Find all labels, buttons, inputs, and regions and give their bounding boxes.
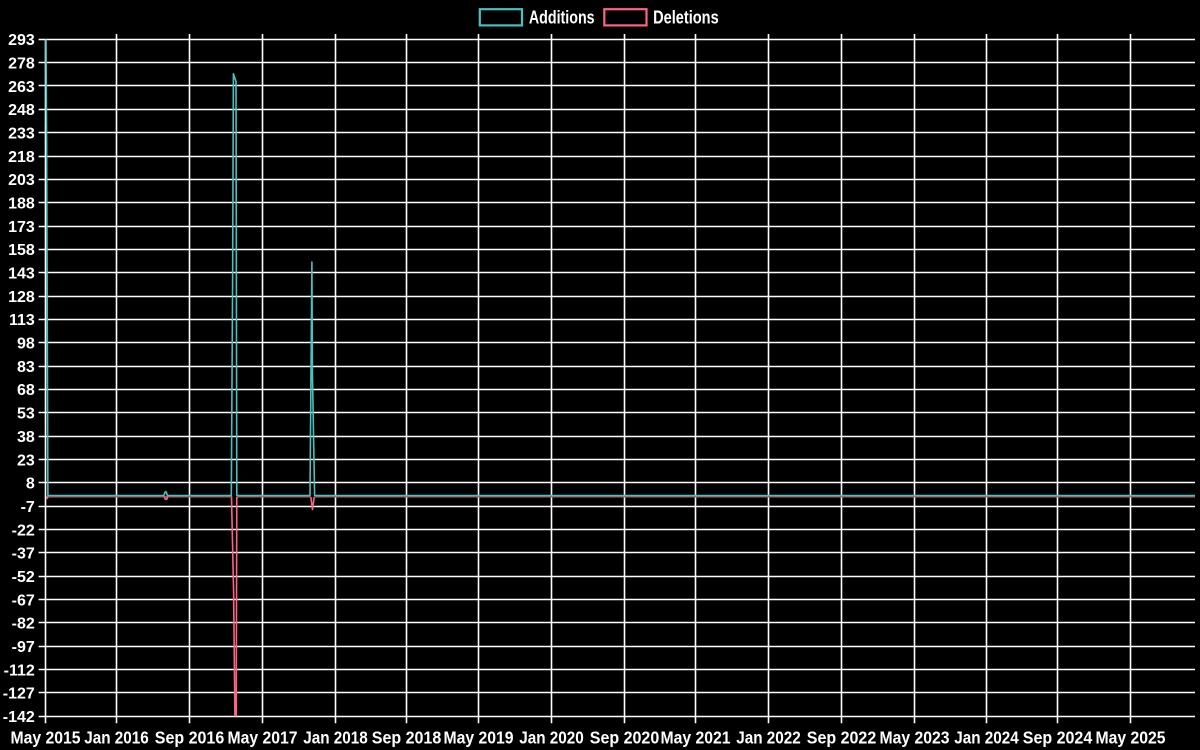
svg-text:Sep 2020: Sep 2020 — [590, 728, 660, 748]
svg-text:-142: -142 — [3, 709, 35, 726]
svg-text:Additions: Additions — [529, 7, 595, 28]
svg-text:-22: -22 — [12, 522, 35, 539]
svg-text:263: 263 — [8, 79, 35, 96]
svg-text:188: 188 — [8, 195, 35, 212]
svg-text:-82: -82 — [12, 616, 35, 633]
svg-text:-52: -52 — [12, 569, 35, 586]
svg-text:68: 68 — [17, 382, 35, 399]
svg-text:May 2025: May 2025 — [1096, 728, 1166, 748]
svg-text:173: 173 — [8, 219, 35, 236]
svg-text:218: 218 — [8, 149, 35, 166]
svg-text:278: 278 — [8, 55, 35, 72]
svg-text:Deletions: Deletions — [653, 7, 719, 28]
svg-text:53: 53 — [17, 406, 35, 423]
svg-text:-97: -97 — [12, 639, 35, 656]
svg-text:-112: -112 — [4, 662, 35, 679]
svg-text:143: 143 — [8, 266, 35, 283]
svg-text:113: 113 — [9, 312, 35, 329]
svg-text:Sep 2024: Sep 2024 — [1023, 728, 1093, 748]
svg-text:98: 98 — [17, 336, 35, 353]
svg-text:38: 38 — [17, 429, 35, 446]
svg-text:8: 8 — [26, 476, 35, 493]
svg-text:May 2017: May 2017 — [228, 728, 298, 748]
svg-text:May 2015: May 2015 — [11, 728, 81, 748]
svg-text:83: 83 — [17, 359, 35, 376]
svg-text:248: 248 — [8, 102, 35, 119]
svg-text:-67: -67 — [12, 592, 35, 609]
svg-text:203: 203 — [8, 172, 35, 189]
svg-text:158: 158 — [8, 242, 35, 259]
svg-text:Jan 2020: Jan 2020 — [519, 728, 584, 748]
svg-text:-127: -127 — [3, 686, 35, 703]
svg-text:293: 293 — [8, 32, 35, 49]
svg-text:Sep 2022: Sep 2022 — [807, 728, 877, 748]
svg-text:Jan 2024: Jan 2024 — [954, 728, 1019, 748]
svg-text:233: 233 — [8, 125, 35, 142]
svg-text:128: 128 — [8, 289, 35, 306]
svg-text:23: 23 — [17, 452, 35, 469]
svg-text:Jan 2016: Jan 2016 — [84, 728, 149, 748]
svg-text:Sep 2018: Sep 2018 — [372, 728, 442, 748]
svg-text:-7: -7 — [21, 499, 35, 516]
svg-text:Jan 2022: Jan 2022 — [736, 728, 801, 748]
svg-text:Jan 2018: Jan 2018 — [303, 728, 368, 748]
svg-text:May 2021: May 2021 — [661, 728, 731, 748]
svg-text:Sep 2016: Sep 2016 — [155, 728, 225, 748]
svg-text:-37: -37 — [12, 546, 35, 563]
svg-text:May 2019: May 2019 — [444, 728, 514, 748]
svg-text:May 2023: May 2023 — [880, 728, 950, 748]
